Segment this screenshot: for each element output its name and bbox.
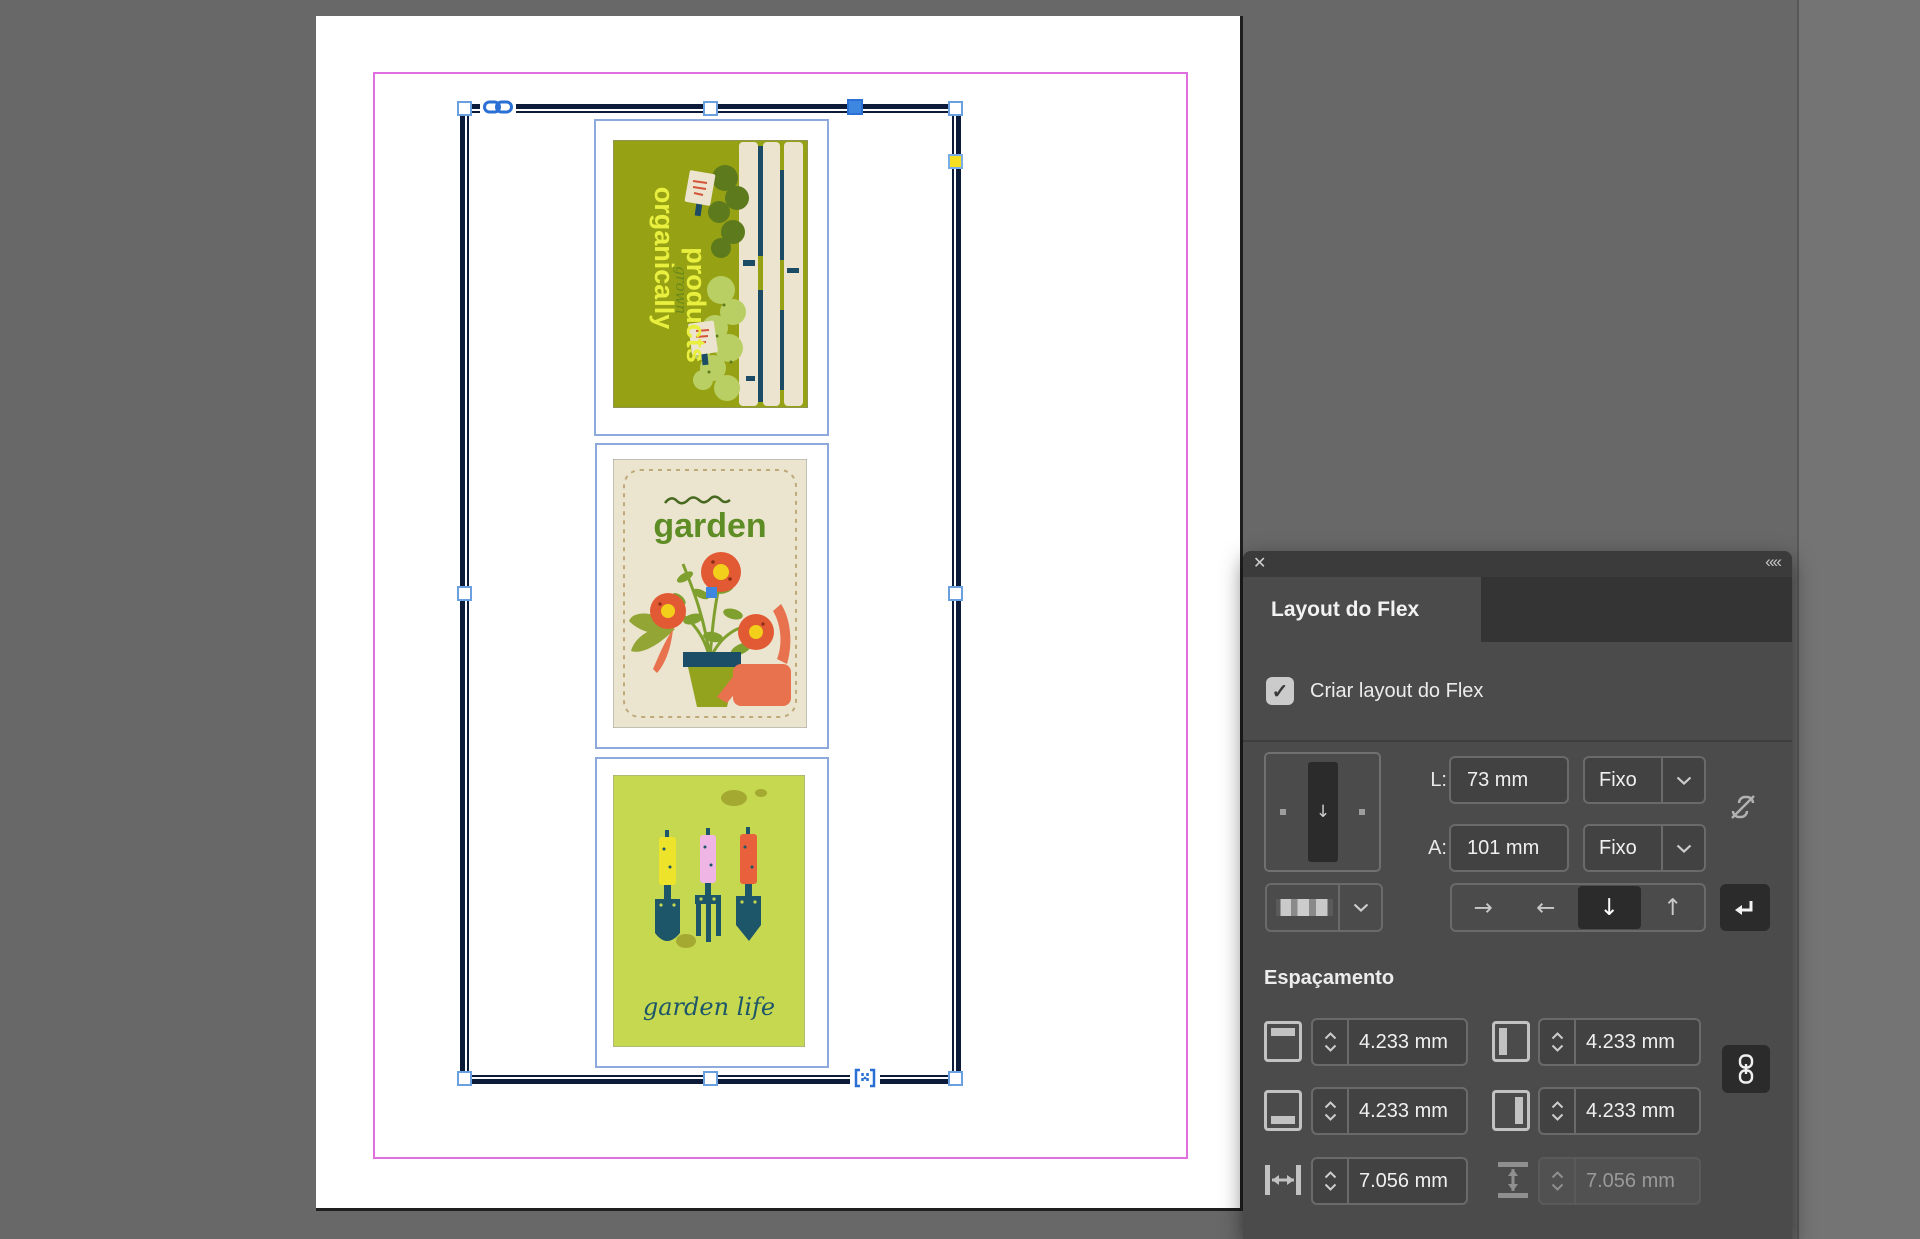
- down-arrow-icon: ↓: [1316, 802, 1330, 822]
- distribution-dropdown[interactable]: [1265, 883, 1383, 932]
- gap-horizontal-input[interactable]: 7.056 mm: [1311, 1157, 1468, 1205]
- handle-middle-right[interactable]: [948, 586, 963, 601]
- padding-top-value: 4.233 mm: [1349, 1020, 1466, 1064]
- chain-link-icon: [483, 99, 513, 115]
- link-padding-values-button[interactable]: [1722, 1045, 1770, 1093]
- height-mode-dropdown[interactable]: Fixo: [1583, 824, 1706, 872]
- direction-button-group: → ← ↓ ↑: [1450, 883, 1706, 932]
- stepper-control[interactable]: [1313, 1020, 1349, 1064]
- width-input[interactable]: 73 mm: [1449, 756, 1569, 804]
- stepper-control[interactable]: [1313, 1089, 1349, 1133]
- direction-left-button[interactable]: ←: [1515, 885, 1578, 930]
- flex-badge-icon: [853, 1067, 877, 1089]
- padding-bottom-input[interactable]: 4.233 mm: [1311, 1087, 1468, 1135]
- distribution-pattern-icon: [1276, 899, 1333, 916]
- chain-link-icon: [1737, 1054, 1755, 1084]
- panel-title: Layout do Flex: [1271, 598, 1419, 622]
- panel-tab-row: Layout do Flex: [1243, 577, 1792, 642]
- chevron-down-icon: [1661, 826, 1704, 870]
- link-parent-badge[interactable]: [480, 95, 516, 119]
- handle-top-right[interactable]: [948, 101, 963, 116]
- flex-order-handle[interactable]: [847, 99, 863, 115]
- padding-top-input[interactable]: 4.233 mm: [1311, 1018, 1468, 1066]
- collapse-panel-icon[interactable]: ««: [1765, 552, 1780, 572]
- right-arrow-icon: →: [1474, 895, 1493, 921]
- separator: [1243, 740, 1792, 742]
- create-flex-layout-checkbox[interactable]: ✓: [1266, 677, 1294, 705]
- wrap-return-icon: [1733, 897, 1757, 919]
- gap-horizontal-icon: [1262, 1159, 1304, 1206]
- padding-left-value: 4.233 mm: [1576, 1020, 1699, 1064]
- application-canvas: organically grown products garden: [0, 0, 1920, 1239]
- gap-horizontal-value: 7.056 mm: [1349, 1159, 1466, 1203]
- handle-top-left[interactable]: [457, 101, 472, 116]
- stepper-control[interactable]: [1540, 1020, 1576, 1064]
- padding-bottom-icon: [1264, 1090, 1302, 1131]
- flex-direction-preview[interactable]: ↓: [1264, 752, 1381, 872]
- gap-vertical-input-disabled: 7.056 mm: [1538, 1157, 1701, 1205]
- padding-left-input[interactable]: 4.233 mm: [1538, 1018, 1701, 1066]
- padding-top-icon: [1264, 1021, 1302, 1062]
- direction-right-button[interactable]: →: [1452, 885, 1515, 930]
- padding-right-input[interactable]: 4.233 mm: [1538, 1087, 1701, 1135]
- height-mode-value: Fixo: [1585, 826, 1661, 870]
- handle-top-center[interactable]: [703, 101, 718, 116]
- width-mode-value: Fixo: [1585, 758, 1661, 802]
- handle-middle-left[interactable]: [457, 586, 472, 601]
- stepper-control[interactable]: [1540, 1089, 1576, 1133]
- direction-up-button[interactable]: ↑: [1642, 885, 1705, 930]
- padding-bottom-value: 4.233 mm: [1349, 1089, 1466, 1133]
- preview-column-pill: ↓: [1308, 762, 1338, 862]
- frame-center-anchor[interactable]: [706, 587, 717, 598]
- wrap-button[interactable]: [1720, 884, 1770, 931]
- spacing-heading: Espaçamento: [1264, 967, 1394, 990]
- handle-bottom-left[interactable]: [457, 1071, 472, 1086]
- right-dock-strip: [1797, 0, 1920, 1239]
- preview-dot-right: [1359, 809, 1365, 815]
- corner-radius-handle[interactable]: [948, 154, 963, 169]
- height-input[interactable]: 101 mm: [1449, 824, 1569, 872]
- width-mode-dropdown[interactable]: Fixo: [1583, 756, 1706, 804]
- close-icon[interactable]: ✕: [1253, 553, 1266, 572]
- gap-vertical-value: 7.056 mm: [1576, 1159, 1699, 1203]
- height-value: 101 mm: [1451, 837, 1539, 860]
- stepper-control-disabled: [1540, 1159, 1576, 1203]
- chevron-down-icon: [1338, 885, 1381, 930]
- panel-topbar: ✕ ««: [1243, 551, 1792, 577]
- tab-layout-do-flex[interactable]: Layout do Flex: [1243, 577, 1481, 642]
- flex-layout-badge[interactable]: [850, 1064, 880, 1092]
- stepper-control[interactable]: [1313, 1159, 1349, 1203]
- down-arrow-icon: ↓: [1600, 895, 1619, 921]
- handle-bottom-right[interactable]: [948, 1071, 963, 1086]
- width-field-label: L:: [1413, 769, 1447, 792]
- chevron-down-icon: [1661, 758, 1704, 802]
- padding-left-icon: [1492, 1021, 1530, 1062]
- gap-vertical-icon-disabled: [1492, 1159, 1534, 1206]
- up-arrow-icon: ↑: [1663, 895, 1682, 921]
- checkmark-icon: ✓: [1272, 679, 1289, 704]
- create-flex-layout-label: Criar layout do Flex: [1310, 677, 1483, 705]
- flex-layout-panel: ✕ «« Layout do Flex ✓ Criar layout do Fl…: [1243, 551, 1792, 1239]
- handle-bottom-center[interactable]: [703, 1071, 718, 1086]
- unlink-dimensions-icon[interactable]: [1726, 789, 1760, 830]
- padding-right-icon: [1492, 1090, 1530, 1131]
- height-field-label: A:: [1413, 837, 1447, 860]
- width-value: 73 mm: [1451, 769, 1528, 792]
- preview-dot-left: [1280, 809, 1286, 815]
- padding-right-value: 4.233 mm: [1576, 1089, 1699, 1133]
- direction-down-button-selected[interactable]: ↓: [1578, 886, 1641, 929]
- left-arrow-icon: ←: [1536, 895, 1555, 921]
